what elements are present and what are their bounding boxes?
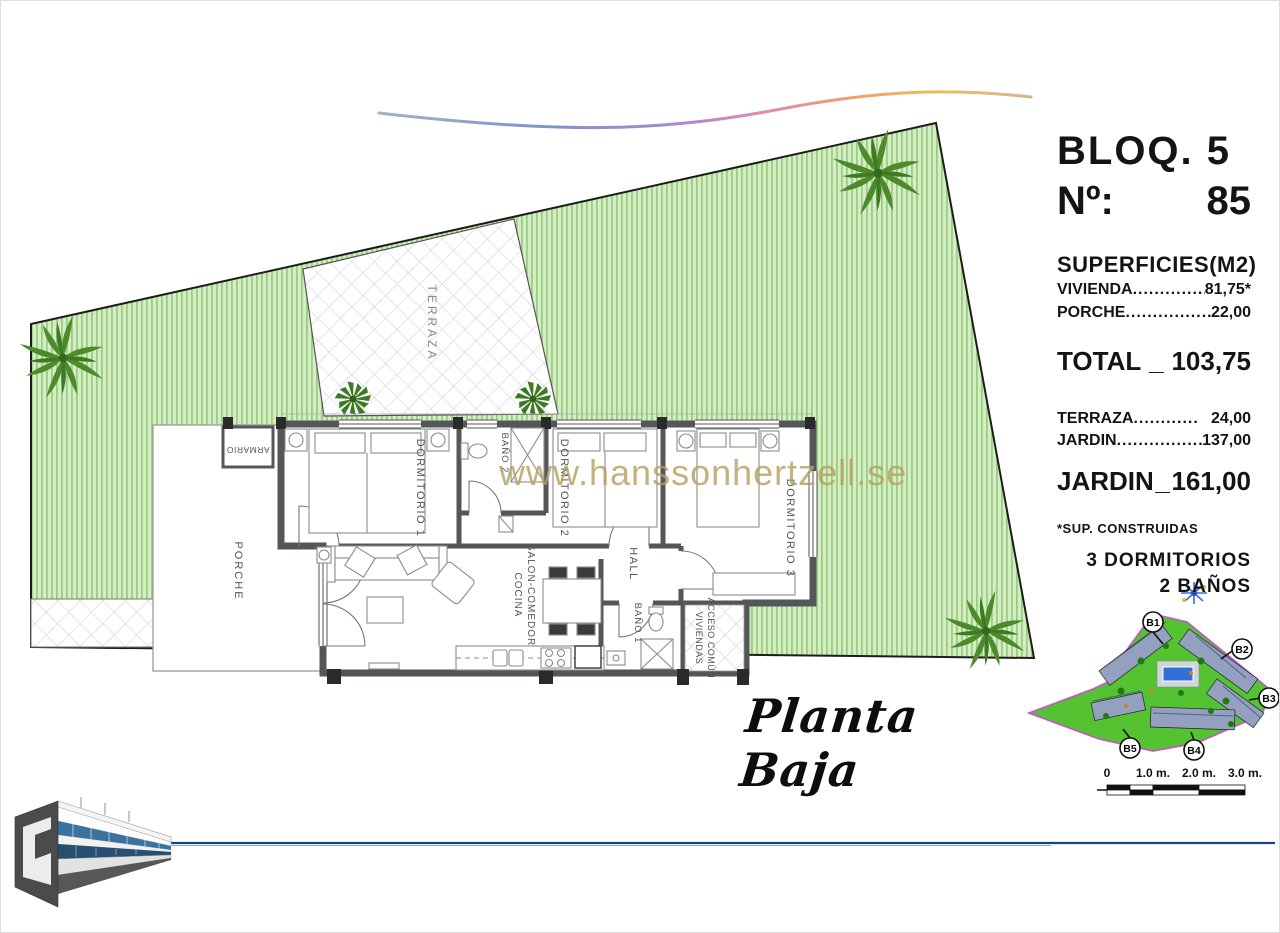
row-label: PORCHE (1057, 303, 1125, 324)
label-hall: HALL (627, 547, 639, 581)
label-dormitorio1: DORMITORIO 1 (414, 439, 426, 537)
unit-number-value: 85 (1207, 179, 1252, 224)
plan-title: Planta Baja (737, 689, 1028, 797)
unit-number-label: Nº: (1057, 179, 1114, 224)
keymap-block-b1: B1 (1146, 617, 1160, 629)
row-dots: ............ (1133, 409, 1211, 430)
watermark: www.hanssonhertzell.se (498, 452, 907, 493)
scale-bar: 0 1.0 m. 2.0 m. 3.0 m. (1097, 766, 1262, 795)
total-value: 103,75 (1171, 346, 1251, 377)
row-dots: ................... (1117, 431, 1203, 452)
garden-total-separator: _ (1155, 466, 1169, 497)
scale-0: 0 (1104, 766, 1111, 780)
total-separator: _ (1149, 346, 1163, 377)
scale-3m: 3.0 m. (1228, 766, 1262, 780)
label-dormitorio3: DORMITORIO 3 (784, 479, 796, 577)
surface-row-porche: PORCHE ................... 22,00 (1057, 303, 1251, 324)
surfaces-title: SUPERFICIES(M2) (1057, 252, 1251, 278)
row-label: TERRAZA (1057, 409, 1133, 430)
label-acceso-line1: ACCESO COMÚN (706, 598, 716, 679)
brochure-page: TERRAZA ARMARIO DORMITORIO 1 BAÑO 2 DORM… (0, 0, 1280, 933)
row-value: 24,00 (1211, 409, 1251, 430)
row-dots: ................... (1125, 303, 1211, 324)
scale-2m: 2.0 m. (1182, 766, 1216, 780)
label-terraza: TERRAZA (425, 284, 439, 361)
row-value: 137,00 (1202, 431, 1251, 452)
site-key-map: B1 B2 B3 B4 B5 (1029, 582, 1279, 760)
label-salon-line1: SALON-COMEDOR (525, 544, 536, 646)
row-value: 22,00 (1211, 303, 1251, 324)
row-label: JARDIN (1057, 431, 1117, 452)
garden-total-label: JARDIN (1057, 466, 1154, 497)
building-render (15, 797, 1275, 907)
header-swoosh (379, 92, 1031, 128)
keymap-block-b3: B3 (1262, 693, 1276, 705)
garden-total-row: JARDIN _ 161,00 (1057, 466, 1251, 497)
label-bano1: BAÑO 1 (632, 603, 643, 644)
row-value: 81,75* (1205, 280, 1251, 301)
corner-paved-area (31, 599, 173, 647)
surface-row-terraza: TERRAZA ............ 24,00 (1057, 409, 1251, 430)
block-title: BLOQ. 5 (1057, 129, 1251, 173)
label-salon-line2: COCINA (512, 573, 523, 618)
surfaces-footnote: *SUP. CONSTRUIDAS (1057, 521, 1251, 536)
row-dots: .................. (1133, 280, 1205, 301)
keymap-block-b5: B5 (1123, 743, 1137, 755)
total-label: TOTAL (1057, 346, 1141, 377)
surface-row-jardin: JARDIN ................... 137,00 (1057, 431, 1251, 452)
row-label: VIVIENDA (1057, 280, 1133, 301)
total-row: TOTAL _ 103,75 (1057, 346, 1251, 377)
bedrooms-count: 3 DORMITORIOS (1057, 550, 1251, 572)
outdoor-rows: TERRAZA ............ 24,00 JARDIN ......… (1057, 409, 1251, 453)
unit-number-row: Nº: 85 (1057, 179, 1251, 224)
bathrooms-count: 2 BAÑOS (1057, 576, 1251, 598)
keymap-block-b2: B2 (1235, 644, 1249, 656)
info-sidebar: BLOQ. 5 Nº: 85 SUPERFICIES(M2) VIVIENDA … (1057, 129, 1251, 598)
keymap-block-b4: B4 (1187, 745, 1201, 757)
garden-total-value: 161,00 (1171, 466, 1251, 497)
label-acceso-line2: VIVIENDAS (694, 612, 704, 665)
label-armario: ARMARIO (226, 445, 269, 455)
label-porche: PORCHE (232, 541, 244, 600)
surface-row-vivienda: VIVIENDA .................. 81,75* (1057, 280, 1251, 301)
scale-1m: 1.0 m. (1136, 766, 1170, 780)
